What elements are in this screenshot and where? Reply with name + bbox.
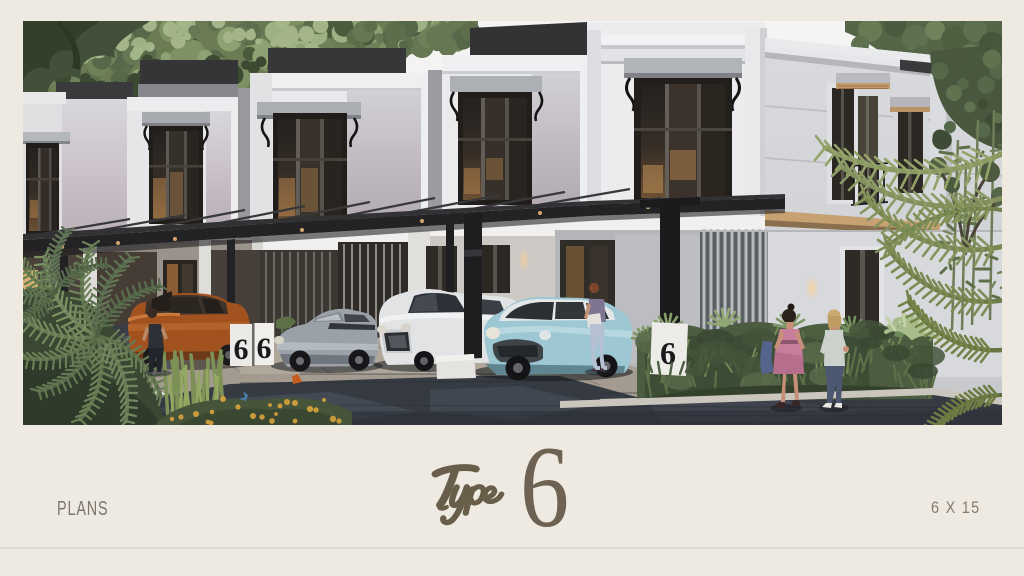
svg-text:6: 6 <box>234 333 249 366</box>
svg-text:PLANS: PLANS <box>57 497 108 520</box>
svg-text:6: 6 <box>257 332 272 365</box>
svg-text:6 X 15: 6 X 15 <box>931 499 980 517</box>
svg-text:6: 6 <box>660 335 676 371</box>
svg-text:6: 6 <box>520 423 569 552</box>
